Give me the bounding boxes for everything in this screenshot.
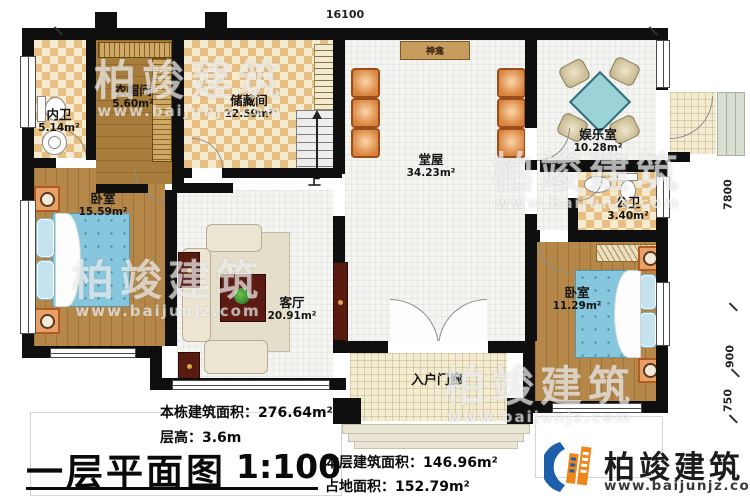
door-opening	[656, 90, 668, 160]
bed-left-pillow	[37, 261, 54, 299]
column	[95, 12, 117, 28]
shrine-label: 神龛	[426, 44, 444, 57]
stairs-arrow-icon	[312, 110, 322, 119]
side-porch-step	[735, 92, 745, 156]
brand-website: www.baijunjz.com	[604, 478, 750, 494]
side-cabinet	[178, 352, 200, 380]
bed-right-blanket	[614, 270, 641, 358]
sofa-top-seat	[206, 224, 262, 252]
hall-chair	[351, 128, 380, 158]
stat-floor-area: 本层建筑面积：146.96m²	[325, 452, 498, 472]
wall	[22, 28, 668, 40]
entry-door-opening	[388, 341, 488, 353]
wardrobe-hatch-top	[98, 42, 172, 58]
sofa-chaise	[204, 340, 268, 374]
room-label-porch: 入户门廊	[392, 374, 482, 389]
room-label-yuleshi: 娱乐室10.28m²	[553, 128, 643, 154]
wall	[165, 190, 177, 346]
window	[656, 282, 670, 346]
porch-column	[507, 398, 533, 424]
wall	[22, 158, 56, 168]
stat-footprint-area: 占地面积：152.79m²	[325, 476, 470, 496]
window	[656, 40, 670, 88]
window	[50, 348, 136, 358]
bed-left-pillow	[37, 219, 54, 257]
floor-plan-page: 神龛 上	[0, 0, 750, 500]
room-label-gongwei: 公卫3.40m²	[583, 196, 673, 222]
stairs-arrow-line	[316, 119, 318, 169]
hall-chair	[351, 68, 380, 98]
bed-right-pillow	[640, 313, 656, 347]
window	[20, 200, 36, 334]
wall	[540, 160, 668, 172]
title-underline	[26, 487, 318, 490]
door-opening	[56, 158, 86, 168]
hall-chair	[497, 98, 526, 128]
dimension-tick	[729, 302, 738, 311]
door-opening	[540, 230, 568, 242]
wall	[525, 28, 537, 128]
hall-chair	[497, 128, 526, 158]
brand-logo-icon	[544, 438, 598, 496]
room-label-yimaojian: 衣帽间5.60m²	[88, 84, 178, 110]
wall	[525, 160, 537, 170]
stat-building-area: 本栋建筑面积：276.64m²	[160, 402, 333, 422]
hall-chair	[351, 98, 380, 128]
column	[205, 12, 227, 28]
room-label-tangwu: 堂屋34.23m²	[386, 153, 476, 179]
wall	[568, 198, 578, 232]
dimension-right-lower: 750	[722, 383, 735, 419]
dimension-top: 16100	[315, 8, 375, 21]
wall	[333, 340, 345, 353]
room-label-bedroom-left: 卧室15.59m²	[58, 192, 148, 218]
nightstand	[34, 186, 60, 212]
bed-right-pillow	[640, 275, 656, 309]
wall	[568, 230, 668, 242]
shrine-shelf: 神龛	[400, 41, 470, 60]
side-cabinet	[178, 252, 200, 288]
dimension-right-upper: 7800	[722, 173, 735, 217]
wall	[333, 28, 345, 174]
door-opening	[525, 128, 537, 160]
room-label-bedroom-right: 卧室11.29m²	[532, 286, 622, 312]
room-label-chucangjian: 储藏间12.59m²	[204, 94, 294, 120]
nightstand	[34, 308, 60, 334]
wall	[177, 183, 233, 193]
hall-chair	[497, 68, 526, 98]
wall	[222, 168, 342, 178]
porch-column	[333, 398, 361, 424]
room-label-neiwei: 内卫5.14m²	[19, 108, 99, 134]
entry-step	[354, 441, 518, 449]
window	[172, 380, 330, 390]
wall	[333, 216, 345, 262]
room-label-keting: 客厅20.91m²	[247, 296, 337, 322]
window	[552, 403, 642, 413]
wall	[184, 168, 192, 178]
stairs-up-label: 上	[308, 170, 321, 189]
